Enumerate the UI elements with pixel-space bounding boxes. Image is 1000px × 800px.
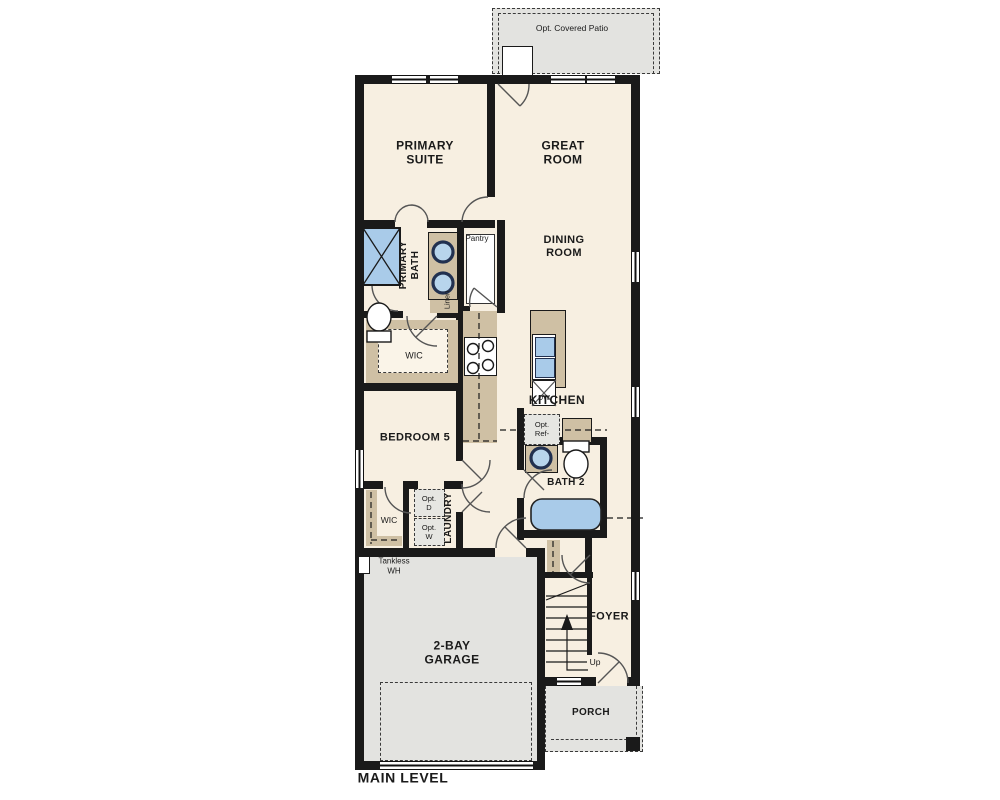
toilet-bath2 — [563, 441, 589, 478]
primary-bath-label: PRIMARYBATH — [398, 241, 422, 290]
wic-primary-door — [407, 316, 437, 346]
garage-entry-door — [496, 518, 526, 548]
bath2-sink — [531, 448, 551, 468]
up-arrow — [561, 614, 573, 630]
floor-plan: Opt. Covered Patio — [0, 0, 1000, 800]
laundry-label: LAUNDRY — [443, 492, 455, 543]
great-room-label: GREATROOM — [541, 139, 584, 168]
door-swings — [372, 84, 628, 683]
tankless-label: TanklessWH — [378, 556, 409, 575]
wic-bedroom5-label: WIC — [381, 515, 398, 525]
dining-room-label: DININGROOM — [544, 234, 585, 260]
wic-primary-label: WIC — [405, 351, 423, 362]
bedroom5-door — [462, 460, 490, 488]
patio-door-leaf — [498, 84, 520, 106]
up-label: Up — [590, 657, 601, 667]
wic2-door — [385, 487, 411, 513]
opt-dryer-label: Opt.D — [422, 494, 436, 512]
foyer-label: FOYER — [589, 610, 629, 623]
linen-label: Linen — [443, 291, 452, 309]
primary-suite-label: PRIMARYSUITE — [396, 139, 454, 168]
opt-washer-label: Opt.W — [422, 523, 436, 541]
hall-door-arc — [462, 197, 488, 222]
opt-ref-label: Opt.Ref- — [535, 420, 549, 438]
garage-label: 2-BAYGARAGE — [424, 639, 479, 668]
porch-label: PORCH — [572, 707, 610, 719]
shower — [363, 228, 400, 285]
vanity-sinks — [433, 242, 453, 293]
plan-linework — [0, 0, 1000, 800]
cooktop-burners — [468, 341, 494, 374]
bathtub — [531, 499, 601, 530]
pantry-door — [470, 288, 497, 307]
pantry-label: Pantry — [465, 234, 488, 244]
patio-door-arc — [520, 84, 529, 106]
stairs — [546, 584, 588, 670]
bedroom5-label: BEDROOM 5 — [380, 431, 450, 444]
toilet-primary — [367, 303, 391, 342]
closet-door — [562, 555, 590, 583]
bath2-label: BATH 2 — [547, 477, 585, 489]
dw-label: DW — [538, 395, 550, 403]
suite-door-arcs — [395, 205, 428, 222]
front-door — [598, 653, 628, 683]
plan-title: MAIN LEVEL — [358, 770, 449, 787]
